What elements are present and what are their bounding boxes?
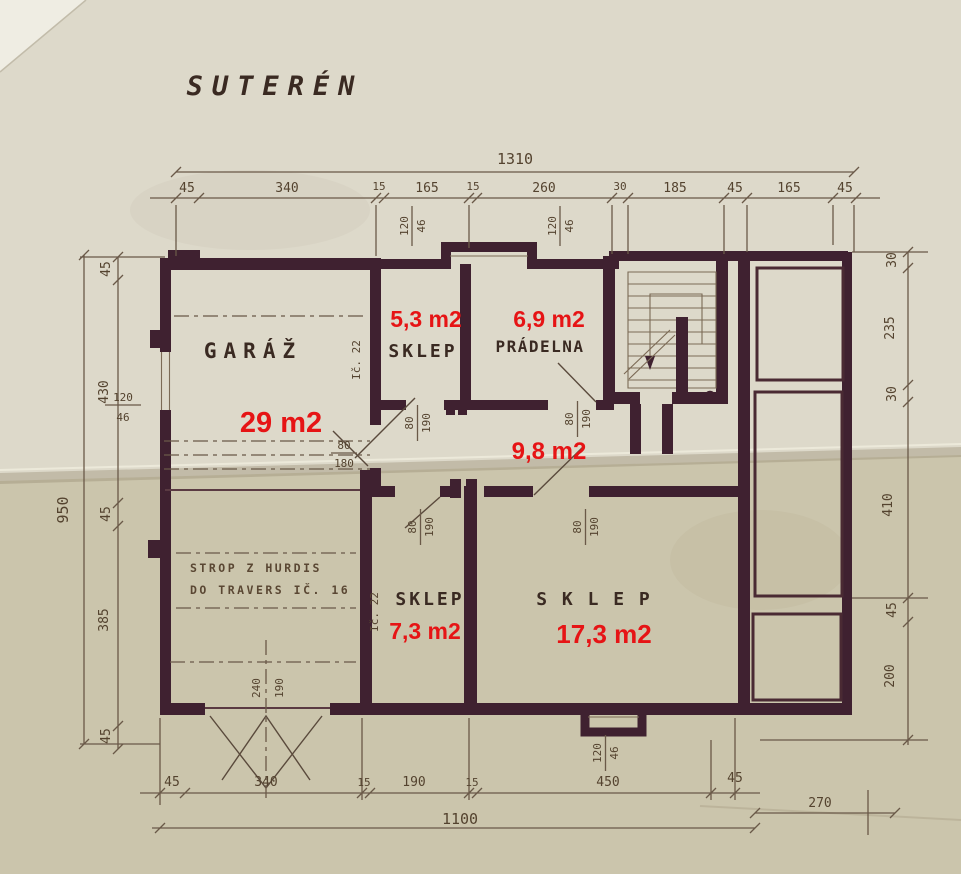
wall-stair-left [603, 256, 615, 404]
gate-label-h: 190 [273, 678, 286, 698]
window-label-w: 120 [398, 216, 411, 236]
wall-stair-bottom-l [615, 392, 640, 404]
dim-top-seg: 260 [532, 181, 555, 196]
floor-plan-svg: SUTERÉN GARÁŽ SKLEP PRÁDELNA SKLEP S K L… [0, 0, 961, 874]
stair-niche-stub [630, 404, 641, 454]
dim-right-seg: 30 [885, 252, 900, 268]
wall-left-lower [160, 410, 171, 715]
beam-label-upper: Ič. 22 [350, 340, 363, 380]
window-label-h: 46 [563, 219, 576, 232]
dim-bottom-seg: 15 [357, 776, 370, 789]
dim-bottom-extension: 270 [808, 796, 831, 811]
door-label-h: 190 [420, 413, 433, 433]
garage-door-label-w: 80 [337, 439, 350, 452]
dim-top-seg: 30 [613, 180, 626, 193]
area-annotation-sklep1: 5,3 m2 [390, 306, 462, 332]
dim-top-seg: 340 [275, 181, 298, 196]
wall-left-pilaster-b [148, 540, 162, 558]
dim-left-total: 950 [54, 496, 72, 523]
dim-bottom-total: 1100 [442, 810, 478, 828]
wall-corridor-south-2 [440, 486, 450, 497]
window-label-h: 46 [415, 219, 428, 232]
window-label-w: 120 [591, 743, 604, 763]
door-label-w: 80 [563, 412, 576, 425]
chimney-post [450, 479, 461, 498]
wall-corridor-south-4 [589, 486, 738, 497]
stair-niche-stub [662, 404, 673, 454]
dim-top-seg: 45 [727, 181, 743, 196]
wall-pradelna-bottom-l [460, 400, 548, 410]
area-annotation-pradelna: 6,9 m2 [513, 306, 585, 332]
dim-left-seg: 45 [99, 506, 114, 522]
window-label-w: 120 [113, 391, 133, 404]
wall-right-wing [738, 252, 750, 708]
wall-left-pilaster-a [150, 330, 162, 348]
wall-garage-top [168, 258, 380, 270]
window-label-w: 120 [546, 216, 559, 236]
ceiling-note-line1: STROP Z HURDIS [190, 561, 322, 575]
garage-door-label-h: 180 [334, 457, 354, 470]
dim-top-seg: 45 [837, 181, 853, 196]
dim-top-seg: 15 [466, 180, 479, 193]
wall-garage-sklep [370, 258, 381, 425]
area-annotation-corridor: 9,8 m2 [512, 438, 587, 465]
paper-stain [130, 170, 370, 250]
door-label-h: 190 [423, 517, 436, 537]
wall-between-skleps [464, 486, 477, 715]
ceiling-note-line2: DO TRAVERS IČ. 16 [190, 582, 350, 597]
paper-bottom [0, 455, 961, 874]
stair-stringer [676, 317, 688, 403]
wall-corridor-south-3 [484, 486, 533, 497]
door-label-h: 190 [580, 409, 593, 429]
door-label-h: 190 [588, 517, 601, 537]
chimney-post [446, 400, 455, 415]
dim-left-seg: 430 [97, 380, 112, 403]
dim-top-seg: 165 [415, 181, 438, 196]
dim-top-seg: 15 [372, 180, 385, 193]
room-label-sklep3: S K L E P [536, 589, 652, 610]
dim-bottom-seg: 45 [727, 771, 743, 786]
window-label-h: 46 [608, 746, 621, 759]
wall-bottom-main [330, 703, 852, 715]
dim-bottom-seg: 45 [164, 775, 180, 790]
room-label-sklep2: SKLEP [395, 589, 464, 610]
door-label-w: 80 [403, 416, 416, 429]
dim-left-seg: 45 [99, 261, 114, 277]
dim-bottom-seg: 190 [402, 775, 425, 790]
wall-bottom-left [160, 703, 205, 715]
wall-sklep-bottom-l [370, 400, 406, 410]
page-title: SUTERÉN [187, 70, 364, 102]
dim-right-seg: 45 [885, 602, 900, 618]
dim-right-seg: 30 [885, 386, 900, 402]
dim-right-seg: 235 [883, 316, 898, 339]
paper-background [0, 0, 961, 874]
wall-stair-right [716, 256, 728, 404]
area-annotation-sklep3: 17,3 m2 [556, 619, 651, 649]
dim-left-seg: 385 [97, 608, 112, 631]
area-annotation-sklep2: 7,3 m2 [389, 618, 461, 644]
window-label-h: 46 [116, 411, 129, 424]
room-label-pradelna: PRÁDELNA [495, 337, 584, 356]
dim-bottom-seg: 450 [596, 775, 619, 790]
scanned-floor-plan: SUTERÉN GARÁŽ SKLEP PRÁDELNA SKLEP S K L… [0, 0, 961, 874]
dim-top-seg: 45 [179, 181, 195, 196]
dim-bottom-seg: 340 [254, 775, 277, 790]
wall-garage-top-notch [168, 250, 200, 259]
dim-top-total: 1310 [497, 150, 533, 168]
door-label-w: 80 [406, 520, 419, 533]
dim-left-seg: 45 [99, 728, 114, 744]
wall-sklep-pradelna [460, 264, 471, 410]
door-label-w: 80 [571, 520, 584, 533]
dim-right-seg: 410 [881, 493, 896, 516]
beam-label-lower: Ič. 22 [368, 592, 381, 632]
room-label-sklep1: SKLEP [388, 341, 457, 362]
room-label-garaz: GARÁŽ [204, 338, 302, 363]
area-annotation-garaz: 29 m2 [240, 407, 322, 439]
dim-right-seg: 200 [883, 664, 898, 687]
dim-bottom-seg: 15 [465, 776, 478, 789]
gate-label-w: 240 [250, 678, 263, 698]
dim-top-seg: 165 [777, 181, 800, 196]
dim-top-seg: 185 [663, 181, 686, 196]
